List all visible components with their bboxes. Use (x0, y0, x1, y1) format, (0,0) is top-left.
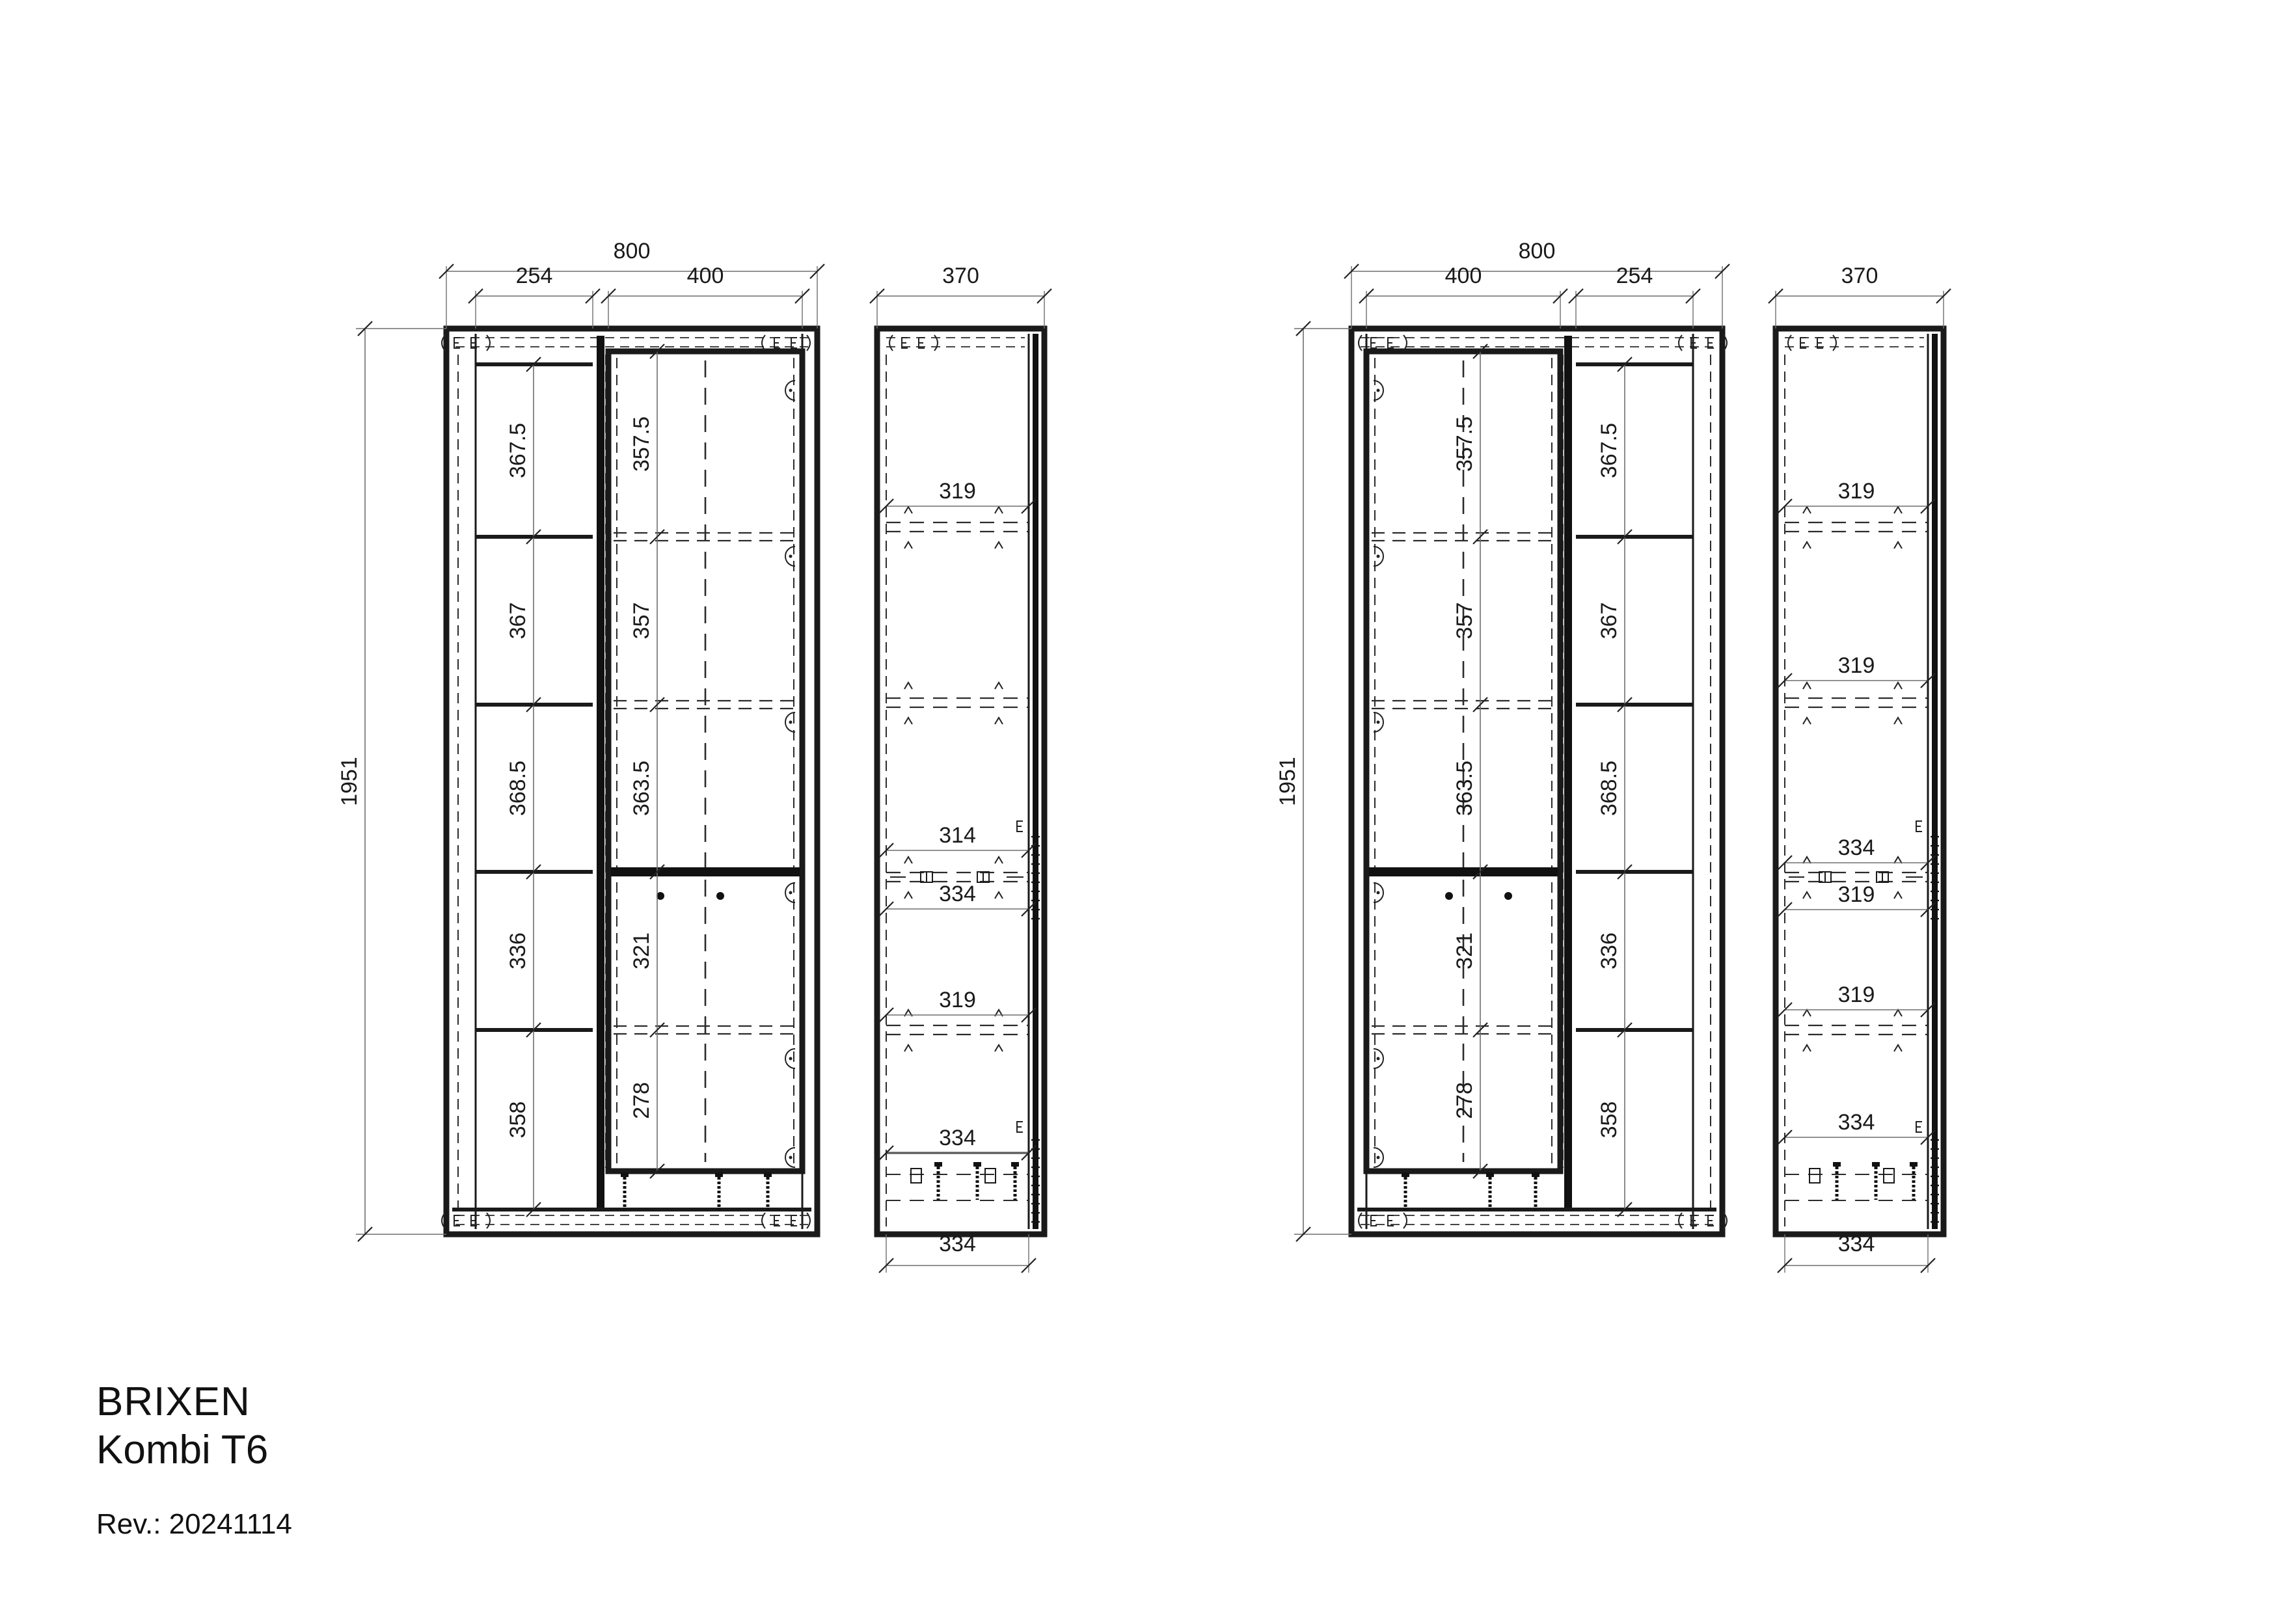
dim-label: 319 (1838, 479, 1875, 504)
dim-label: 334 (1838, 1110, 1875, 1135)
dim-label: 358 (1597, 1102, 1621, 1139)
side-view-left: 319314334319334370334 (870, 264, 1051, 1273)
dim-label: 357.5 (629, 416, 654, 472)
dim-label: 400 (687, 264, 724, 288)
dim-label: 363.5 (1452, 761, 1477, 816)
dim-label: 278 (629, 1082, 654, 1119)
dim-label: 319 (1838, 882, 1875, 907)
dim-label: 319 (1838, 653, 1875, 678)
dim-label: 319 (939, 479, 976, 504)
dim-label: 367 (1597, 602, 1621, 640)
dim-label: 367.5 (1597, 423, 1621, 478)
product-name: BRIXEN (96, 1378, 292, 1426)
revision-label: Rev.: 20241114 (96, 1508, 292, 1541)
dim-label: 368.5 (506, 761, 530, 816)
dim-label: 319 (1838, 982, 1875, 1007)
dim-label: 357.5 (1452, 416, 1477, 472)
dim-label: 321 (629, 932, 654, 969)
dim-label: 370 (1841, 264, 1878, 288)
dim-label: 334 (1838, 835, 1875, 860)
dim-label: 363.5 (629, 761, 654, 816)
technical-drawing: 8002544001951367.5367368.5336358357.5357… (0, 0, 2291, 1624)
dim-label: 334 (939, 1232, 976, 1256)
title-block: BRIXEN Kombi T6 Rev.: 20241114 (96, 1378, 292, 1541)
variant-name: Kombi T6 (96, 1426, 292, 1474)
dim-label: 314 (939, 823, 976, 848)
dim-label: 370 (942, 264, 979, 288)
dim-label: 368.5 (1597, 761, 1621, 816)
dim-label: 800 (1519, 239, 1556, 264)
height-dim-label: 1951 (1275, 757, 1300, 806)
height-dim-label: 1951 (337, 757, 362, 806)
dim-label: 334 (939, 1126, 976, 1150)
front-view-right: 8002544001951367.5367368.5336358357.5357… (1275, 239, 1729, 1241)
dim-label: 334 (1838, 1232, 1875, 1256)
front-view-left: 8002544001951367.5367368.5336358357.5357… (337, 239, 824, 1241)
side-view-right: 319319334319319334370334 (1769, 264, 1951, 1273)
dim-label: 367 (506, 602, 530, 640)
dim-label: 336 (1597, 932, 1621, 969)
dim-label: 254 (516, 264, 553, 288)
dim-label: 321 (1452, 932, 1477, 969)
dim-label: 357 (629, 602, 654, 640)
dim-label: 358 (506, 1102, 530, 1139)
dim-label: 400 (1445, 264, 1482, 288)
dim-label: 336 (506, 932, 530, 969)
dim-label: 254 (1616, 264, 1653, 288)
dim-label: 367.5 (506, 423, 530, 478)
dim-label: 800 (614, 239, 651, 264)
dim-label: 334 (939, 882, 976, 906)
dim-label: 278 (1452, 1082, 1477, 1119)
dim-label: 319 (939, 988, 976, 1012)
dim-label: 357 (1452, 602, 1477, 640)
